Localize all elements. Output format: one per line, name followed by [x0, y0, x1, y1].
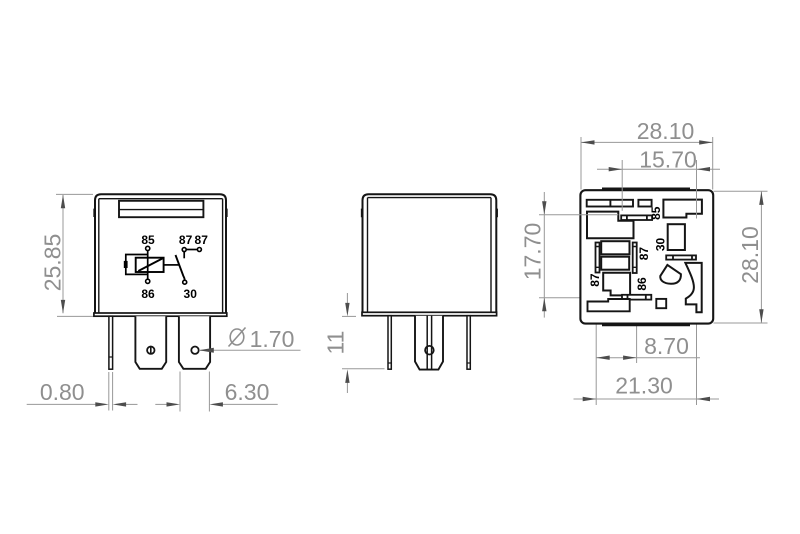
svg-text:28.10: 28.10	[737, 226, 763, 284]
svg-text:21.30: 21.30	[615, 373, 673, 399]
svg-text:6.30: 6.30	[225, 379, 270, 405]
svg-text:86: 86	[635, 277, 649, 291]
svg-text:30: 30	[654, 238, 668, 252]
svg-text:25.85: 25.85	[40, 234, 66, 292]
svg-text:17.70: 17.70	[520, 223, 546, 281]
svg-text:8.70: 8.70	[644, 333, 689, 359]
svg-text:11: 11	[323, 331, 349, 355]
svg-text:28.10: 28.10	[637, 118, 695, 144]
svg-text:15.70: 15.70	[639, 147, 697, 173]
svg-text:0.80: 0.80	[40, 379, 85, 405]
svg-text:85: 85	[649, 206, 663, 220]
svg-text:85: 85	[141, 233, 155, 247]
svg-text:1.70: 1.70	[250, 326, 295, 352]
svg-text:87: 87	[588, 273, 602, 287]
svg-text:87: 87	[195, 233, 209, 247]
svg-text:86: 86	[141, 287, 155, 301]
svg-text:87: 87	[179, 233, 193, 247]
svg-text:87: 87	[637, 247, 651, 261]
svg-text:30: 30	[184, 287, 198, 301]
